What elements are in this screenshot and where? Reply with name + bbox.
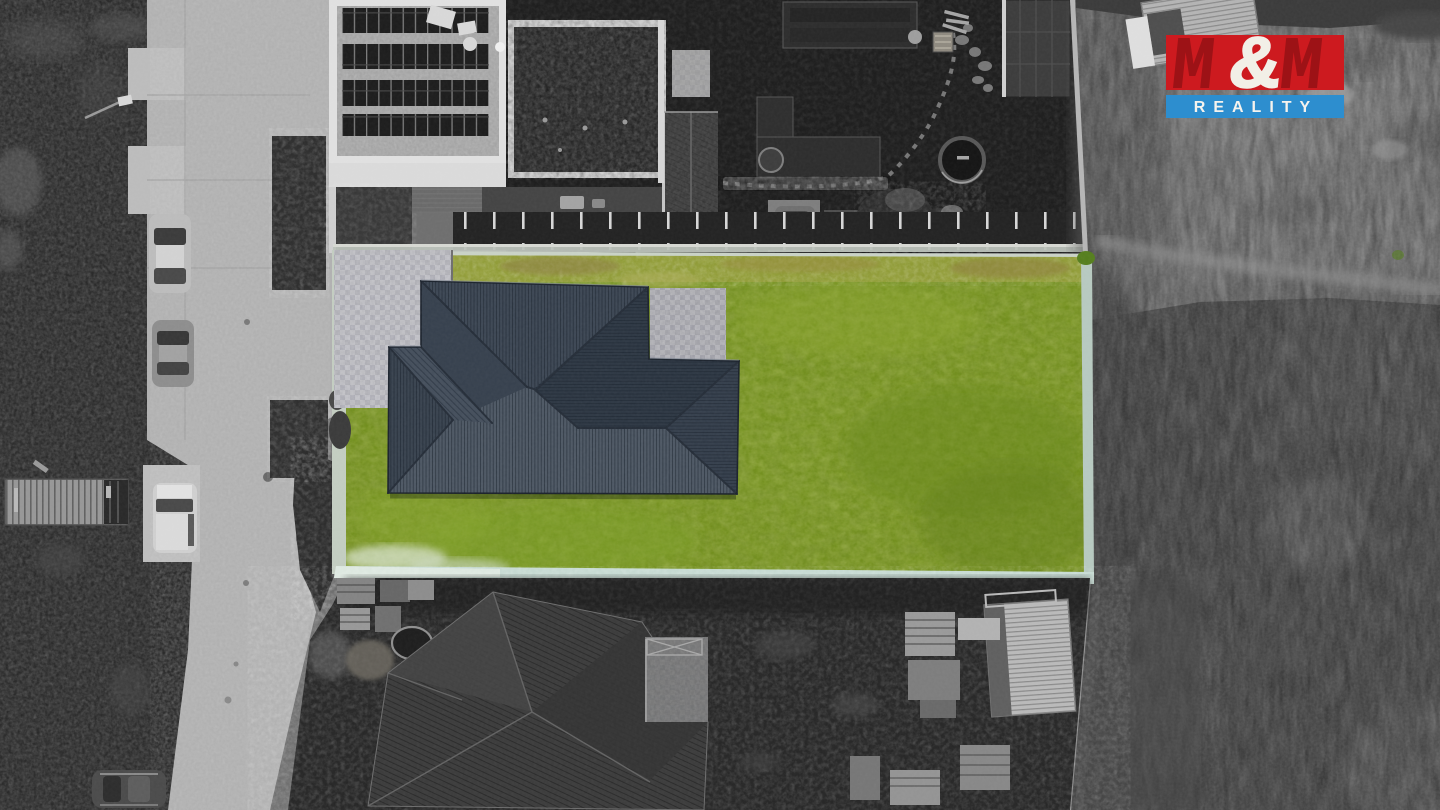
svg-text:REALITY: REALITY — [1194, 99, 1318, 116]
svg-text:&: & — [1225, 23, 1285, 103]
